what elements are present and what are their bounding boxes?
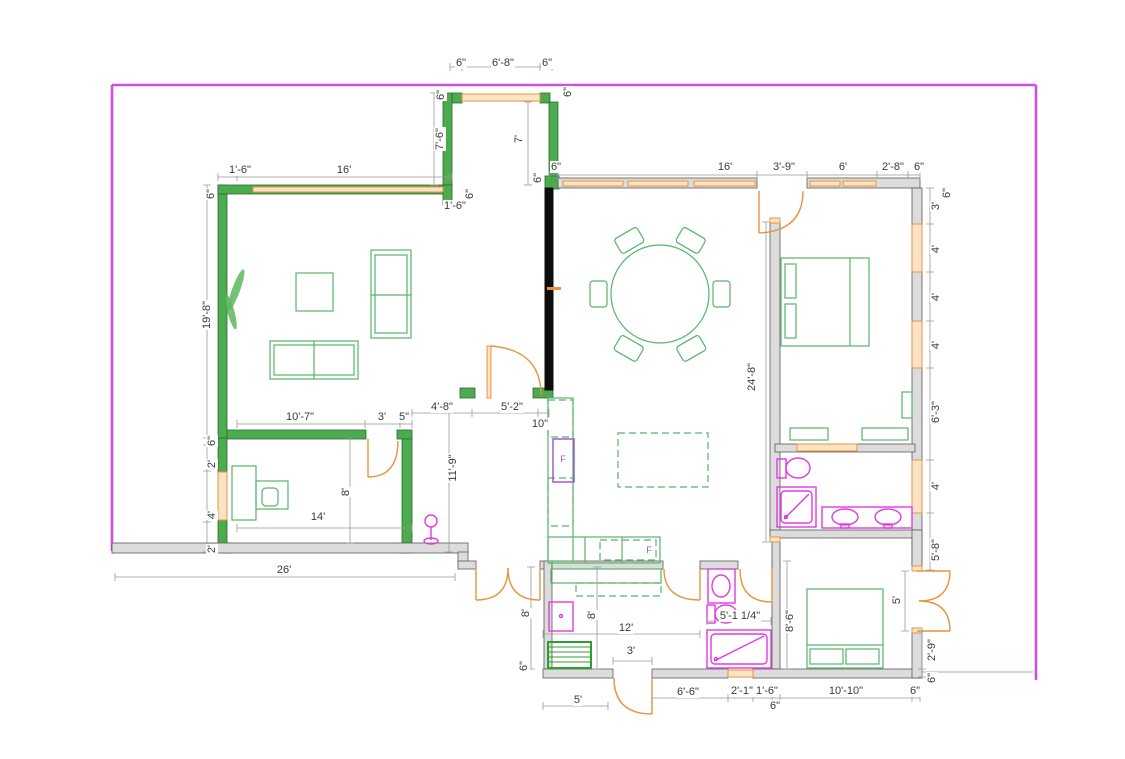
appliance-label: F bbox=[646, 545, 652, 555]
dimension-label: 7'-6" bbox=[434, 127, 446, 151]
dimension-label: 5' bbox=[891, 595, 903, 605]
dimension-label: 6" bbox=[455, 57, 467, 69]
dimension-label: 6" bbox=[913, 161, 925, 173]
dimension-label: 2' bbox=[206, 459, 218, 469]
dimension-label: 7' bbox=[513, 134, 525, 144]
dimension-label: 3' bbox=[626, 645, 636, 657]
dimension-label: 6" bbox=[550, 161, 562, 173]
dimension-label: 5" bbox=[398, 411, 410, 423]
floor-plan-canvas[interactable]: 6"6'-8"6"6"6"7'-6"7'6"1'-6"16'6"1'-6"6"6… bbox=[0, 0, 1125, 759]
dimension-label: 2' bbox=[206, 544, 218, 554]
dimension-label: 5'-1 1/4" bbox=[719, 610, 761, 622]
dimension-label: 26' bbox=[276, 564, 292, 576]
dimension-label: 5'-8" bbox=[930, 538, 942, 562]
dimension-label: 1'-6" bbox=[443, 200, 467, 212]
dimension-label: 6'-8" bbox=[491, 57, 515, 69]
dimension-labels-layer: 6"6'-8"6"6"6"7'-6"7'6"1'-6"16'6"1'-6"6"6… bbox=[0, 0, 1125, 759]
dimension-label: 6" bbox=[205, 188, 217, 200]
dimension-label: 6'-6" bbox=[676, 686, 700, 698]
dimension-label: 3' bbox=[377, 411, 387, 423]
dimension-label: 5'-2" bbox=[500, 401, 524, 413]
dimension-label: 10'-10" bbox=[828, 685, 864, 697]
dimension-label: 4' bbox=[206, 510, 218, 520]
dimension-label: 2'-9" bbox=[926, 638, 938, 662]
dimension-label: 3'-9" bbox=[772, 161, 796, 173]
dimension-label: 6" bbox=[206, 435, 218, 447]
dimension-label: 8' bbox=[586, 610, 598, 620]
dimension-label: 6" bbox=[532, 172, 544, 184]
dimension-label: 10'-7" bbox=[285, 411, 315, 423]
dimension-label: 6" bbox=[464, 188, 476, 200]
dimension-label: 6' bbox=[838, 161, 848, 173]
dimension-label: 12' bbox=[618, 622, 634, 634]
dimension-label: 16' bbox=[717, 161, 733, 173]
dimension-label: 8' bbox=[340, 487, 352, 497]
dimension-label: 8' bbox=[520, 608, 532, 618]
dimension-label: 8'-6" bbox=[784, 609, 796, 633]
dimension-label: 1'-6" bbox=[755, 685, 779, 697]
dimension-label: 10" bbox=[531, 418, 549, 430]
dimension-label: 16' bbox=[336, 164, 352, 176]
dimension-label: 1'-6" bbox=[228, 164, 252, 176]
dimension-label: 6'-3" bbox=[930, 400, 942, 424]
dimension-label: 11'-9" bbox=[447, 453, 459, 482]
dimension-label: 14' bbox=[310, 511, 326, 523]
dimension-label: 6" bbox=[926, 672, 938, 684]
dimension-label: 4' bbox=[930, 292, 942, 302]
dimension-label: 2'-1" bbox=[730, 685, 754, 697]
dimension-label: 3' bbox=[930, 201, 942, 211]
dimension-label: 6" bbox=[562, 86, 574, 98]
dimension-label: 6" bbox=[435, 89, 447, 101]
dimension-label: 4' bbox=[930, 244, 942, 254]
dimension-label: 6" bbox=[909, 685, 921, 697]
dimension-label: 4' bbox=[930, 481, 942, 491]
dimension-label: 2'-8" bbox=[881, 161, 905, 173]
dimension-label: 19'-8" bbox=[201, 300, 213, 330]
dimension-label: 24'-8" bbox=[746, 362, 758, 392]
dimension-label: 6" bbox=[941, 187, 953, 199]
appliance-label: F bbox=[560, 454, 566, 464]
dimension-label: 4'-8" bbox=[430, 401, 454, 413]
dimension-label: 5' bbox=[573, 694, 583, 706]
dimension-label: 6" bbox=[518, 660, 530, 672]
dimension-label: 4' bbox=[930, 340, 942, 350]
dimension-label: 6" bbox=[541, 57, 553, 69]
dimension-label: 6" bbox=[769, 700, 781, 712]
